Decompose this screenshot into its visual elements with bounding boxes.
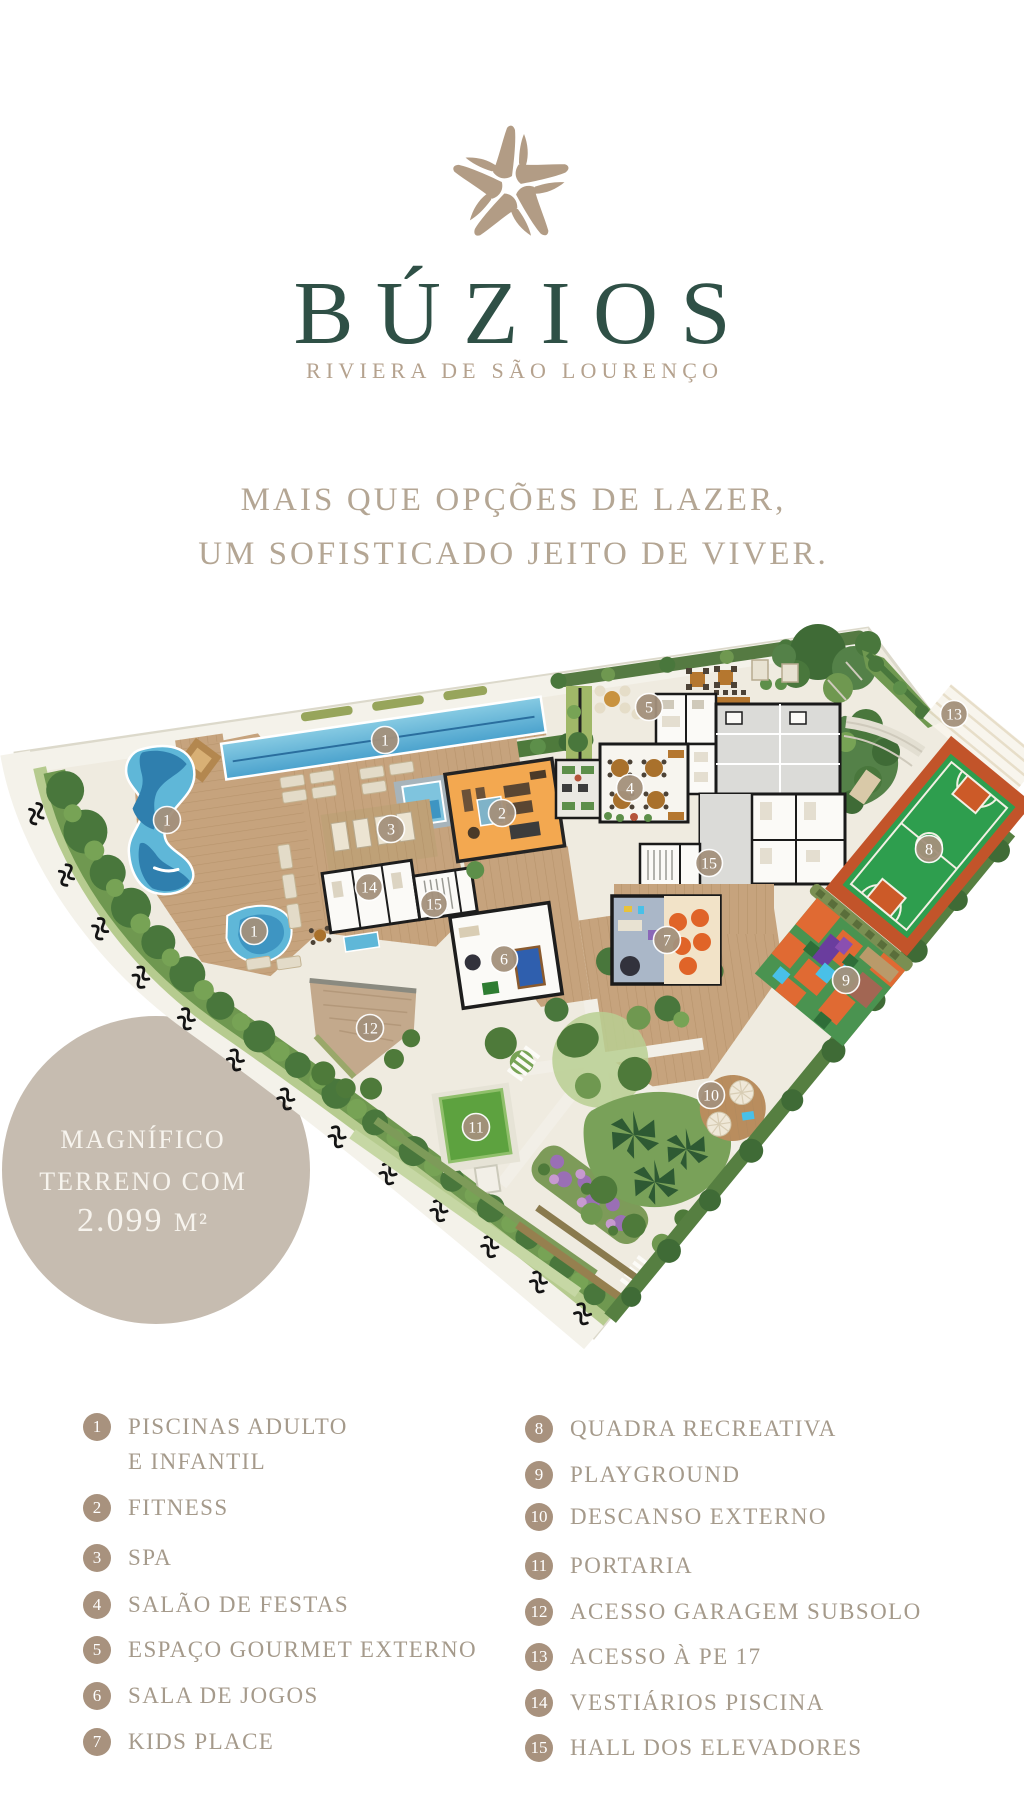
svg-text:3: 3 [387, 822, 395, 839]
svg-text:7: 7 [663, 933, 671, 950]
svg-text:5: 5 [645, 700, 653, 717]
svg-text:2: 2 [498, 806, 506, 823]
svg-text:14: 14 [361, 880, 377, 897]
svg-text:1: 1 [163, 813, 171, 830]
svg-text:13: 13 [946, 707, 962, 724]
svg-text:9: 9 [842, 973, 850, 990]
svg-text:1: 1 [381, 733, 389, 750]
svg-text:12: 12 [362, 1021, 378, 1038]
svg-text:1: 1 [250, 924, 258, 941]
svg-text:4: 4 [626, 781, 634, 798]
svg-text:15: 15 [701, 856, 717, 873]
svg-text:6: 6 [500, 952, 508, 969]
svg-text:11: 11 [468, 1120, 483, 1137]
svg-text:10: 10 [703, 1088, 719, 1105]
svg-text:8: 8 [925, 842, 933, 859]
svg-text:15: 15 [426, 897, 442, 914]
